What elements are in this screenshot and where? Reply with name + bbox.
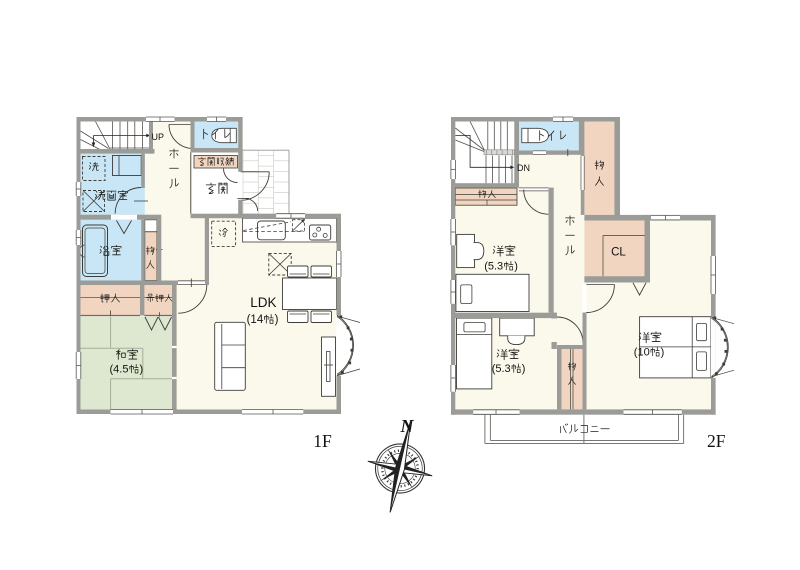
svg-text:CL: CL	[611, 246, 626, 258]
svg-text:DN: DN	[517, 163, 530, 173]
svg-text:2F: 2F	[707, 431, 726, 451]
svg-text:(5.3: (5.3	[492, 363, 511, 375]
svg-text:): )	[522, 363, 526, 375]
svg-text:N: N	[400, 416, 415, 436]
svg-text:): )	[661, 347, 665, 359]
svg-text:): )	[275, 314, 279, 326]
svg-text:): )	[140, 364, 144, 376]
svg-text:(14: (14	[247, 314, 264, 326]
svg-text:1F: 1F	[313, 431, 332, 451]
svg-text:(10: (10	[634, 347, 650, 359]
svg-text:(5.3: (5.3	[484, 261, 503, 273]
svg-text:): )	[514, 261, 518, 273]
svg-text:(4.5: (4.5	[110, 364, 129, 376]
svg-text:LDK: LDK	[250, 295, 276, 310]
svg-text:UP: UP	[152, 132, 165, 142]
